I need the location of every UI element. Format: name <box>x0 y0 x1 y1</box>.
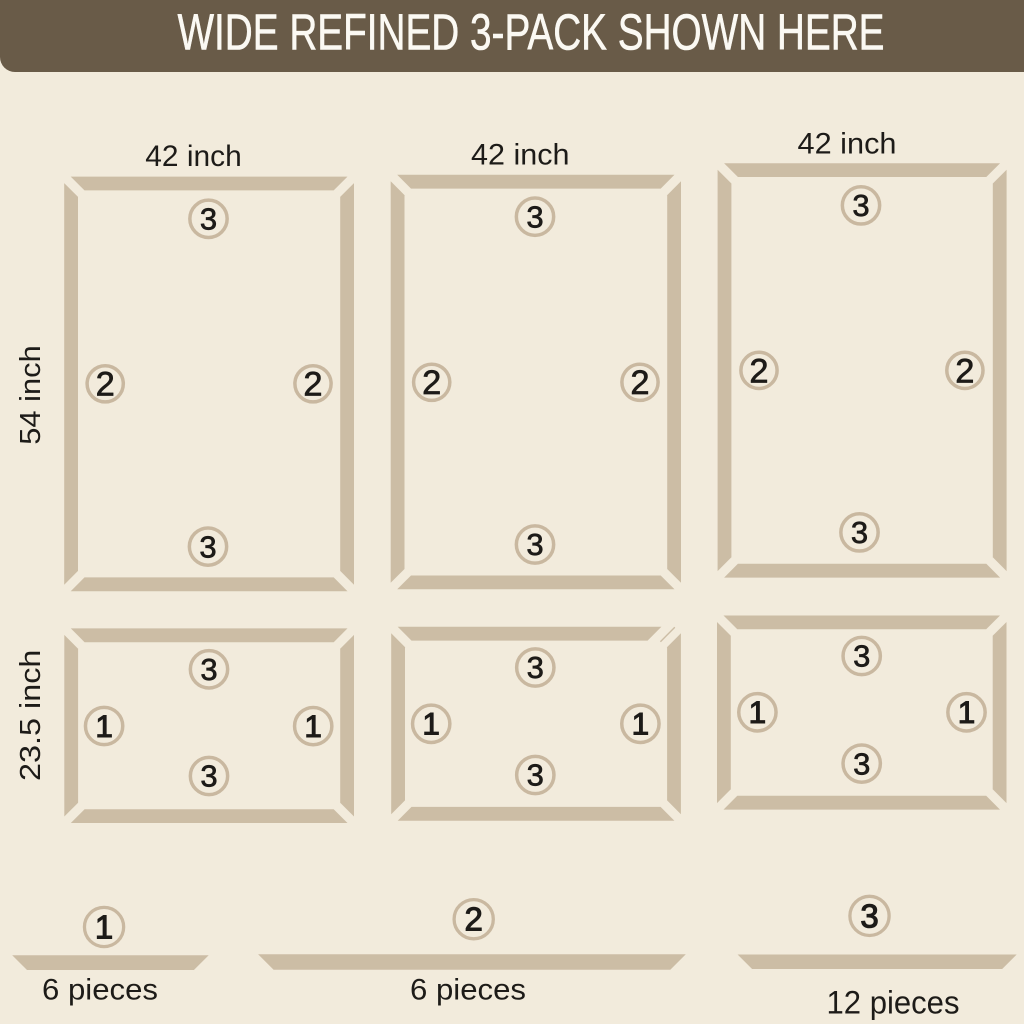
svg-text:3: 3 <box>200 202 217 237</box>
svg-text:3: 3 <box>200 652 217 687</box>
svg-text:1: 1 <box>958 694 976 730</box>
svg-text:1: 1 <box>95 908 113 945</box>
svg-text:1: 1 <box>95 708 113 744</box>
svg-text:3: 3 <box>853 746 870 781</box>
svg-text:1: 1 <box>422 706 440 742</box>
svg-text:2: 2 <box>955 352 974 390</box>
svg-text:2: 2 <box>749 352 768 390</box>
svg-text:42 inch: 42 inch <box>798 128 897 161</box>
svg-text:2: 2 <box>630 364 649 402</box>
svg-text:2: 2 <box>422 364 441 402</box>
svg-text:23.5 inch: 23.5 inch <box>15 650 47 782</box>
svg-text:12 pieces: 12 pieces <box>827 985 960 1021</box>
svg-text:3: 3 <box>199 529 216 564</box>
svg-text:3: 3 <box>853 639 870 674</box>
svg-text:WIDE REFINED 3-PACK SHOWN HERE: WIDE REFINED 3-PACK SHOWN HERE <box>178 4 885 61</box>
svg-text:42 inch: 42 inch <box>145 140 242 173</box>
svg-text:3: 3 <box>526 527 543 562</box>
svg-text:1: 1 <box>304 708 322 744</box>
svg-text:3: 3 <box>527 758 544 793</box>
svg-text:54 inch: 54 inch <box>15 345 47 445</box>
svg-text:3: 3 <box>852 188 869 223</box>
svg-text:3: 3 <box>527 650 544 685</box>
svg-text:2: 2 <box>96 366 115 404</box>
svg-text:2: 2 <box>303 366 322 404</box>
svg-text:1: 1 <box>749 694 767 730</box>
svg-text:6 pieces: 6 pieces <box>410 974 526 1007</box>
svg-text:2: 2 <box>465 901 483 938</box>
svg-text:3: 3 <box>860 897 878 934</box>
svg-text:42 inch: 42 inch <box>471 139 570 172</box>
svg-text:1: 1 <box>632 706 650 742</box>
svg-text:3: 3 <box>200 759 217 794</box>
svg-text:3: 3 <box>526 199 543 234</box>
svg-text:6 pieces: 6 pieces <box>42 974 158 1007</box>
svg-text:3: 3 <box>851 515 868 550</box>
